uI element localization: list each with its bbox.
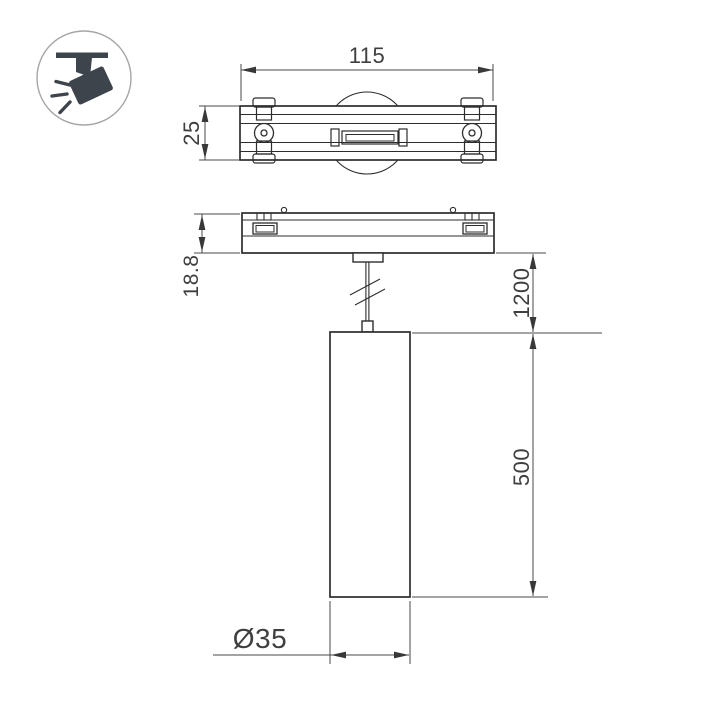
arrowhead	[199, 237, 206, 252]
icon-track-bar	[56, 53, 108, 59]
side-view-track-adapter	[242, 207, 494, 262]
cable-connector	[362, 321, 373, 332]
technical-drawing-page: 115 25 18.8 1200 500	[0, 0, 720, 720]
dim-lamp-diameter: Ø35	[213, 601, 410, 664]
dim-label-suspension-length: 1200	[509, 268, 534, 319]
arrowhead	[202, 107, 209, 122]
arrowhead	[530, 581, 537, 596]
pendant-cylinder	[330, 332, 410, 597]
arrowhead	[241, 67, 256, 74]
arrowhead	[394, 652, 409, 659]
arrowhead	[530, 254, 537, 269]
track-light-icon	[37, 31, 131, 125]
break-symbol	[350, 279, 385, 305]
dim-label-track-depth: 25	[179, 120, 204, 145]
arrowhead	[530, 334, 537, 349]
adapter-body-side	[242, 213, 494, 253]
cable-gland	[353, 253, 383, 262]
top-view-track-adapter	[240, 92, 496, 174]
dim-base-height: 18.8	[180, 214, 240, 297]
dim-label-track-width: 115	[349, 43, 386, 68]
arrowhead	[331, 652, 346, 659]
dim-label-lamp-height: 500	[509, 448, 534, 486]
suspension-cable	[350, 262, 385, 332]
dim-label-lamp-diameter: Ø35	[233, 623, 287, 654]
dim-suspension-length: 1200	[412, 253, 602, 333]
dim-track-depth: 25	[179, 106, 239, 160]
arrowhead	[478, 67, 493, 74]
arrowhead	[199, 215, 206, 230]
dim-lamp-height: 500	[412, 334, 548, 597]
dim-label-base-height: 18.8	[180, 255, 203, 298]
